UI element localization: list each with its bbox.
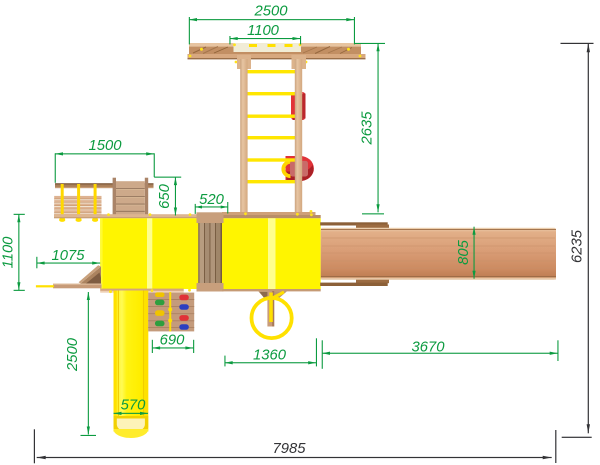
svg-text:2500: 2500 bbox=[254, 4, 289, 20]
svg-text:2500: 2500 bbox=[65, 337, 81, 372]
svg-text:7985: 7985 bbox=[273, 441, 307, 457]
svg-text:1360: 1360 bbox=[253, 348, 287, 364]
svg-text:805: 805 bbox=[456, 239, 472, 264]
svg-text:1100: 1100 bbox=[247, 23, 280, 39]
svg-text:570: 570 bbox=[121, 398, 146, 414]
svg-text:650: 650 bbox=[157, 183, 173, 208]
svg-text:3670: 3670 bbox=[412, 340, 446, 356]
svg-text:2635: 2635 bbox=[360, 111, 376, 146]
svg-text:1500: 1500 bbox=[89, 138, 123, 154]
svg-text:1075: 1075 bbox=[52, 248, 86, 264]
svg-text:520: 520 bbox=[199, 192, 224, 208]
svg-text:6235: 6235 bbox=[570, 229, 586, 263]
svg-text:690: 690 bbox=[160, 333, 185, 349]
svg-text:1100: 1100 bbox=[1, 236, 17, 269]
